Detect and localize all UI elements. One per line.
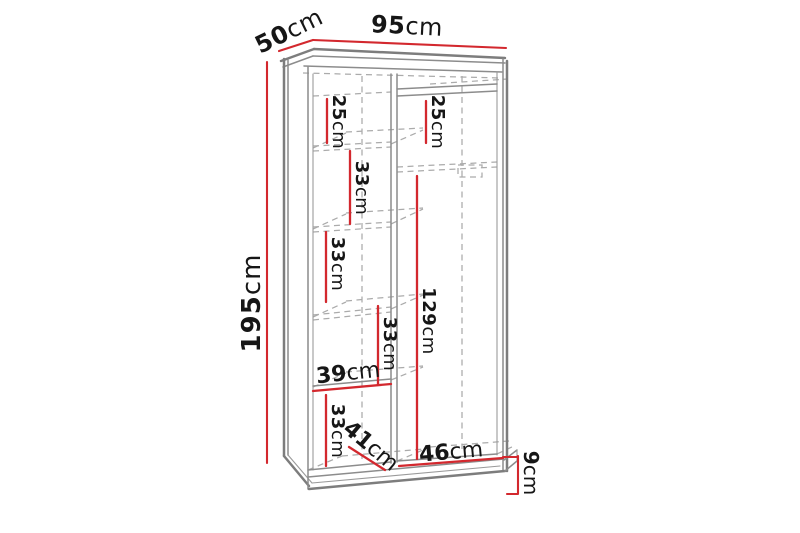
dim-label-left-25: 25cm: [329, 95, 350, 150]
dim-label-left-33b: 33cm: [328, 237, 349, 292]
dim-label-right-25: 25cm: [428, 95, 449, 150]
dim-label-left-33c: 33cm: [380, 317, 401, 372]
dim-label-depth-50: 50cm: [251, 3, 328, 60]
dim-label-width-95: 95cm: [370, 10, 443, 42]
dim-label-left-33a: 33cm: [352, 161, 373, 216]
dim-label-base-9: 9cm: [519, 451, 543, 495]
wardrobe-outline: [281, 49, 517, 489]
dim-label-width-46: 46cm: [418, 437, 484, 467]
dim-line-width-95: [313, 40, 506, 48]
dim-label-width-39: 39cm: [315, 357, 381, 389]
dim-label-height-195: 195cm: [237, 254, 267, 353]
wardrobe-dimension-diagram: 95cm 50cm 195cm 25cm 33cm 33cm 33cm 39cm…: [0, 0, 800, 533]
product-dimension-image: 95cm 50cm 195cm 25cm 33cm 33cm 33cm 39cm…: [0, 0, 800, 533]
dim-label-hanging-129: 129cm: [419, 287, 440, 355]
dimension-lines: [267, 40, 518, 494]
